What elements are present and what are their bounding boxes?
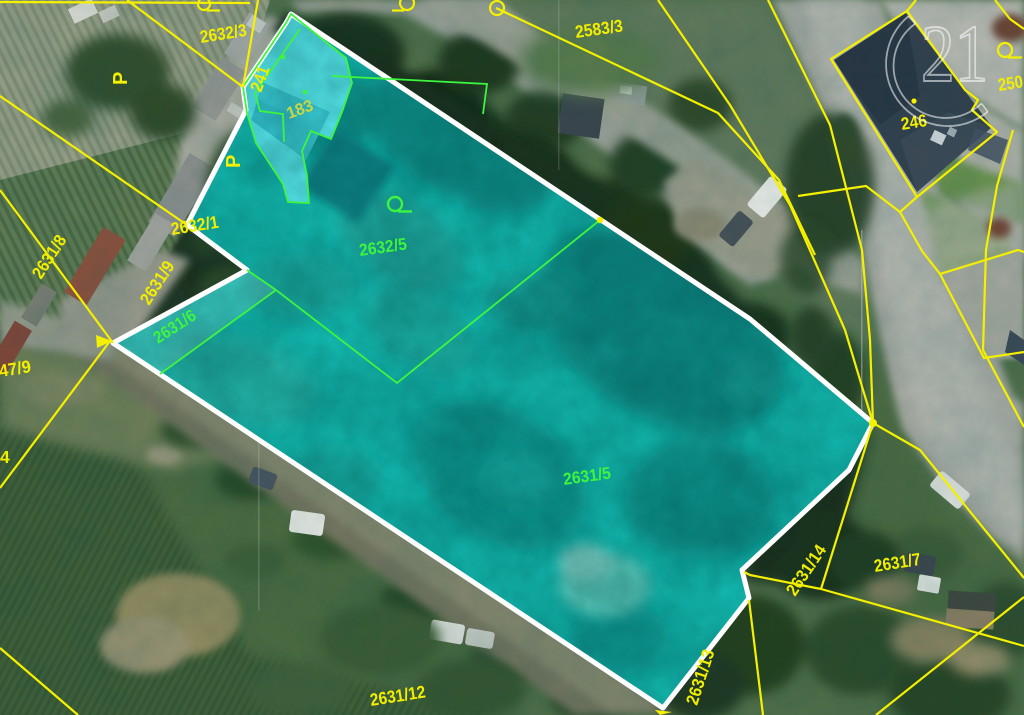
svg-text:P: P [110,72,132,85]
svg-text:4: 4 [0,447,10,467]
svg-text:250: 250 [996,71,1024,95]
svg-text:21: 21 [921,9,988,100]
svg-text:P: P [223,155,245,168]
